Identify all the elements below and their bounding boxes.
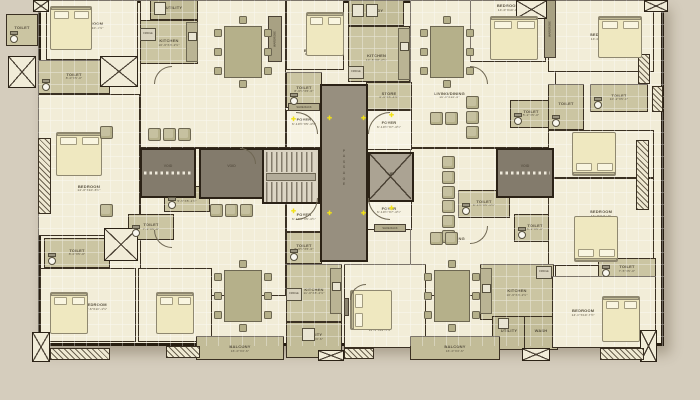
toilet-wc-bowl	[462, 207, 470, 215]
fridge: FRIDGE	[286, 288, 302, 301]
window-sill-hatch	[600, 348, 644, 360]
dining-chair	[443, 16, 451, 24]
window-sill-hatch	[166, 346, 200, 358]
passage-marker-icon: ✚	[361, 211, 367, 217]
fridge: FRIDGE	[140, 28, 156, 41]
window-sill-hatch	[652, 86, 663, 112]
bed-pillow	[606, 301, 619, 309]
bed-headboard	[573, 172, 615, 175]
bed	[602, 296, 640, 342]
toilet-wc-bowl	[42, 83, 50, 91]
sofa-cushion	[148, 128, 161, 141]
duct-symbol	[318, 350, 344, 361]
kitchen-counter	[398, 28, 410, 80]
dining-chair	[420, 48, 428, 56]
bed-pillow	[599, 249, 615, 257]
void-label: VOID	[498, 164, 552, 168]
lift-shaft: LIFT	[368, 152, 414, 202]
sofa-cushion	[442, 215, 455, 228]
bed-pillow	[517, 21, 535, 29]
dining-chair	[214, 273, 222, 281]
dining-chair	[472, 273, 480, 281]
dining-chair	[424, 292, 432, 300]
sofa-cushion-inner	[164, 129, 173, 138]
bed-headboard	[307, 13, 343, 16]
sofa-cushion-inner	[431, 113, 440, 122]
bed-headboard	[51, 7, 91, 10]
sofa-cushion	[430, 112, 443, 125]
bed-pillow	[624, 301, 637, 309]
dining-chair	[214, 67, 222, 75]
passage-corridor: P A S S A G E	[320, 84, 368, 262]
bed-pillow	[602, 21, 618, 29]
bed-headboard	[575, 258, 617, 261]
toilet-wc-bowl	[602, 269, 610, 277]
dining-chair	[239, 260, 247, 268]
sofa-cushion-inner	[211, 205, 220, 214]
floor-plan: UP TYPE 01 TYPE 02 TYPE 03 TYPE 04 LIVIN…	[0, 0, 700, 400]
room-store: STORE6'-6"X5'-4½"	[366, 82, 412, 110]
dining-chair	[472, 311, 480, 319]
duct-symbol	[100, 56, 138, 87]
sofa-cushion	[240, 204, 253, 217]
dining-chair	[214, 311, 222, 319]
dining-chair	[264, 29, 272, 37]
dining-chair	[472, 292, 480, 300]
room-label: UTILITY	[493, 329, 525, 334]
dining-table	[430, 26, 464, 78]
toilet-wc-bowl	[290, 253, 298, 261]
sofa-cushion	[210, 204, 223, 217]
dining-chair	[264, 311, 272, 319]
bed-headboard	[603, 297, 639, 300]
passage-marker-icon: ✚	[327, 211, 333, 217]
bed-headboard	[599, 17, 641, 20]
dining-table	[224, 270, 262, 322]
bed-pillow	[328, 17, 341, 25]
dining-chair	[466, 29, 474, 37]
bed	[572, 132, 616, 176]
appliance	[352, 4, 364, 17]
lift-cross-icon	[370, 154, 411, 199]
sofa-cushion	[445, 232, 458, 245]
dining-chair	[239, 16, 247, 24]
passage-marker-icon: ✚	[361, 116, 367, 122]
sofa-cushion-inner	[179, 129, 188, 138]
bed-pillow	[310, 17, 323, 25]
bed-pillow	[578, 249, 594, 257]
passage-marker-icon: ✚	[327, 116, 333, 122]
dining-chair	[424, 273, 432, 281]
toilet-wc-bowl	[518, 231, 526, 239]
fridge: FRIDGE	[348, 66, 364, 79]
room-balcony: BALCONY16'-0"X3'-6"	[410, 336, 500, 360]
window-sill-hatch	[344, 348, 374, 359]
sofa-cushion-inner	[467, 97, 476, 106]
sofa-cushion	[100, 204, 113, 217]
lift-label: LIFT	[370, 172, 412, 176]
bed-headboard	[157, 293, 193, 296]
room-label: TOILET	[549, 102, 583, 107]
sofa-cushion-inner	[443, 187, 452, 196]
sofa-cushion-inner	[446, 113, 455, 122]
dining-chair	[239, 324, 247, 332]
bed-pillow	[494, 21, 512, 29]
void-shaft: VOID	[199, 148, 264, 199]
void-label: VOID	[201, 164, 262, 168]
sofa-cushion	[442, 186, 455, 199]
sofa-cushion	[442, 171, 455, 184]
dining-chair	[420, 29, 428, 37]
sofa-cushion-inner	[241, 205, 250, 214]
window-sill-hatch	[50, 348, 110, 360]
stair-landing	[266, 173, 316, 181]
bed	[598, 16, 642, 58]
room-label: TOILET	[7, 26, 37, 31]
sofa-cushion-inner	[431, 233, 440, 242]
bed-pillow	[178, 297, 191, 305]
dining-table	[224, 26, 262, 78]
toilet-wc-bowl	[10, 35, 18, 43]
appliance	[498, 318, 509, 329]
duct-symbol	[522, 348, 550, 361]
dining-chair	[420, 67, 428, 75]
sofa-cushion	[466, 96, 479, 109]
bed-headboard	[57, 133, 101, 136]
duct-symbol	[32, 332, 50, 362]
void-shaft: VOID	[140, 148, 196, 198]
passage-label: P A S S A G E	[322, 149, 366, 188]
dining-chair	[448, 324, 456, 332]
sofa-cushion	[225, 204, 238, 217]
void-shaft: VOID	[496, 148, 554, 198]
toilet-wc-bowl	[132, 229, 140, 237]
tv-unit	[344, 298, 349, 316]
dining-chair	[214, 29, 222, 37]
bed-headboard	[491, 17, 537, 20]
room-label: BALCONY16'-0"X3'-6"	[197, 345, 283, 353]
bed	[56, 132, 102, 176]
sofa-cushion	[466, 111, 479, 124]
sofa-cushion-inner	[149, 129, 158, 138]
bed	[574, 216, 618, 262]
bed-pillow	[60, 137, 77, 145]
wardrobe-label: WARDROBE	[274, 31, 277, 47]
appliance	[154, 2, 166, 15]
dining-chair	[424, 311, 432, 319]
kitchen-counter	[186, 22, 198, 62]
dining-chair	[264, 292, 272, 300]
bed	[156, 292, 194, 334]
sofa-cushion-inner	[226, 205, 235, 214]
toilet-wc-bowl	[594, 101, 602, 109]
duct-symbol	[644, 0, 668, 12]
dining-chair	[448, 260, 456, 268]
toilet-wc-bowl	[552, 119, 560, 127]
wardrobe-label: WARDROBE	[549, 21, 552, 37]
appliance	[482, 284, 491, 293]
void-dash	[144, 172, 192, 175]
dining-chair	[239, 80, 247, 88]
stair-flight	[266, 152, 316, 172]
window-sill-hatch	[638, 54, 650, 84]
bed-pillow	[597, 163, 613, 171]
sofa-cushion-inner	[467, 112, 476, 121]
toilet-wc-bowl	[290, 97, 298, 105]
sofa-cushion-inner	[443, 172, 452, 181]
toilet-wc-bowl	[168, 201, 176, 209]
shoe-rack: SHOE RACK	[374, 224, 406, 232]
staircase	[262, 148, 320, 204]
bed-pillow	[74, 11, 89, 19]
room-label: BALCONY16'-0"X3'-6"	[411, 345, 499, 353]
toilet-wc-bowl	[514, 117, 522, 125]
void-label: VOID	[142, 164, 194, 168]
kitchen-counter	[330, 268, 342, 314]
bed-pillow	[54, 297, 67, 305]
appliance	[188, 32, 197, 41]
appliance	[332, 282, 341, 291]
sofa-cushion-inner	[101, 127, 110, 136]
duct-symbol	[8, 56, 36, 88]
sofa-cushion-inner	[443, 201, 452, 210]
sofa-cushion	[442, 200, 455, 213]
sofa-cushion	[163, 128, 176, 141]
bed-pillow	[576, 163, 592, 171]
sofa-cushion	[466, 126, 479, 139]
room-balcony: BALCONY16'-0"X3'-6"	[196, 336, 284, 360]
sofa-cushion	[178, 128, 191, 141]
dining-table	[434, 270, 470, 322]
dining-chair	[214, 292, 222, 300]
dining-chair	[264, 48, 272, 56]
dining-chair	[443, 80, 451, 88]
dining-chair	[264, 273, 272, 281]
bed	[490, 16, 538, 60]
window-sill-hatch	[636, 140, 649, 210]
bed-pillow	[355, 313, 363, 327]
appliance	[302, 328, 315, 341]
appliance	[366, 4, 378, 17]
dining-chair	[264, 67, 272, 75]
bed-pillow	[82, 137, 99, 145]
sofa-cushion-inner	[101, 205, 110, 214]
duct-symbol	[33, 0, 49, 12]
fridge: FRIDGE	[536, 266, 552, 279]
bed-pillow	[72, 297, 85, 305]
bed-pillow	[160, 297, 173, 305]
bed-pillow	[623, 21, 639, 29]
sofa-cushion-inner	[443, 157, 452, 166]
window-sill-hatch	[38, 138, 51, 214]
bed	[306, 12, 344, 56]
sofa-cushion	[430, 232, 443, 245]
room-label: BEDROOM14'-0"X10'-6½"	[39, 185, 139, 193]
dining-chair	[466, 48, 474, 56]
bed	[50, 292, 88, 334]
void-dash	[500, 172, 550, 175]
bed	[50, 6, 92, 50]
bed-headboard	[51, 293, 87, 296]
appliance	[400, 42, 409, 51]
dining-chair	[214, 48, 222, 56]
sofa-cushion	[100, 126, 113, 139]
toilet-wc-bowl	[48, 257, 56, 265]
bed-pillow	[54, 11, 69, 19]
sofa-cushion-inner	[467, 127, 476, 136]
sofa-cushion-inner	[443, 216, 452, 225]
sofa-cushion	[445, 112, 458, 125]
sofa-cushion	[442, 156, 455, 169]
sofa-cushion-inner	[446, 233, 455, 242]
room-label: STORE6'-6"X5'-4½"	[367, 92, 411, 100]
